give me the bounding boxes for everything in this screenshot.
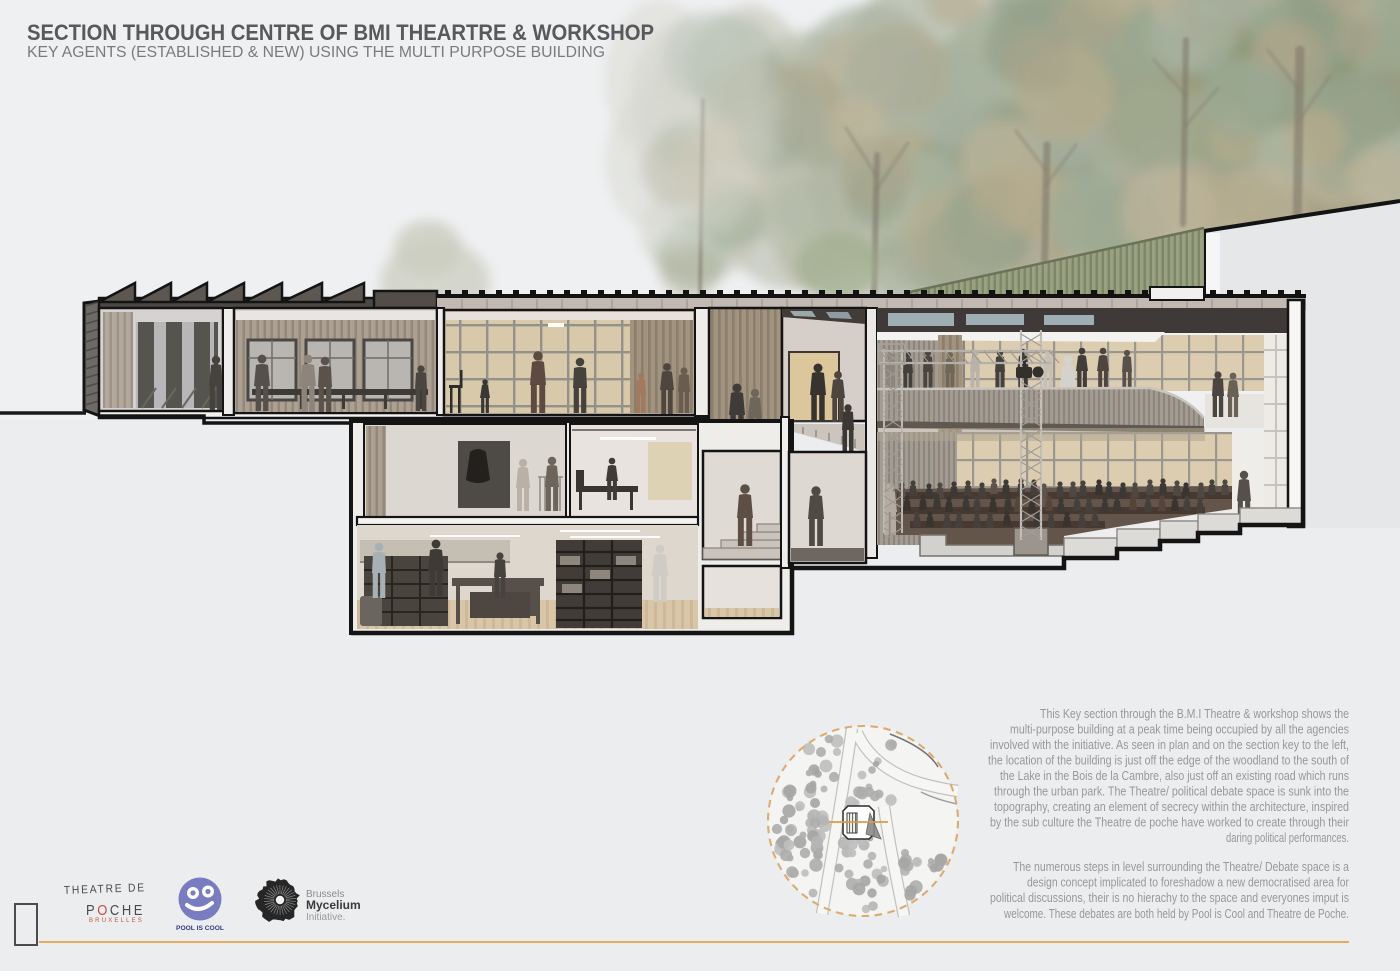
svg-text:the location of the building i: the location of the building is just off… bbox=[988, 754, 1349, 768]
svg-text:multi-purpose building at a pe: multi-purpose building at a peak time be… bbox=[1010, 723, 1349, 737]
svg-text:This Key section through the B: This Key section through the B.M.I Theat… bbox=[1040, 707, 1349, 721]
svg-text:KEY AGENTS (ESTABLISHED & NEW): KEY AGENTS (ESTABLISHED & NEW) USING THE… bbox=[27, 44, 605, 61]
svg-text:daring political performances.: daring political performances. bbox=[1226, 831, 1349, 845]
svg-text:SECTION THROUGH CENTRE OF BMI: SECTION THROUGH CENTRE OF BMI THEARTRE &… bbox=[27, 20, 654, 45]
svg-text:Initiative.: Initiative. bbox=[306, 912, 345, 923]
svg-text:Mycelium: Mycelium bbox=[306, 898, 361, 912]
svg-text:by the sub culture the Theatre: by the sub culture the Theatre de poche … bbox=[990, 816, 1349, 830]
svg-text:the Lake in the Bois de la Cam: the Lake in the Bois de la Cambre, also … bbox=[1000, 769, 1349, 783]
svg-text:POCHE: POCHE bbox=[86, 902, 145, 919]
svg-text:The numerous steps in level su: The numerous steps in level surrounding … bbox=[1013, 860, 1349, 874]
svg-text:involved with the initiative.: involved with the initiative. As seen in… bbox=[990, 738, 1349, 752]
svg-text:POOL IS COOL: POOL IS COOL bbox=[176, 925, 224, 932]
svg-text:political discussions, their i: political discussions, their is no hiera… bbox=[990, 891, 1349, 905]
svg-text:design concept implicated to f: design concept implicated to foreshadow … bbox=[1027, 876, 1349, 890]
svg-text:through the urban park. The Th: through the urban park. The Theatre/ pol… bbox=[994, 785, 1349, 799]
svg-text:BRUXELLES: BRUXELLES bbox=[89, 918, 144, 924]
svg-text:welcome. These debates are bot: welcome. These debates are both held by … bbox=[1003, 907, 1349, 921]
svg-text:topography, creating an elemen: topography, creating an element of secre… bbox=[994, 800, 1349, 814]
